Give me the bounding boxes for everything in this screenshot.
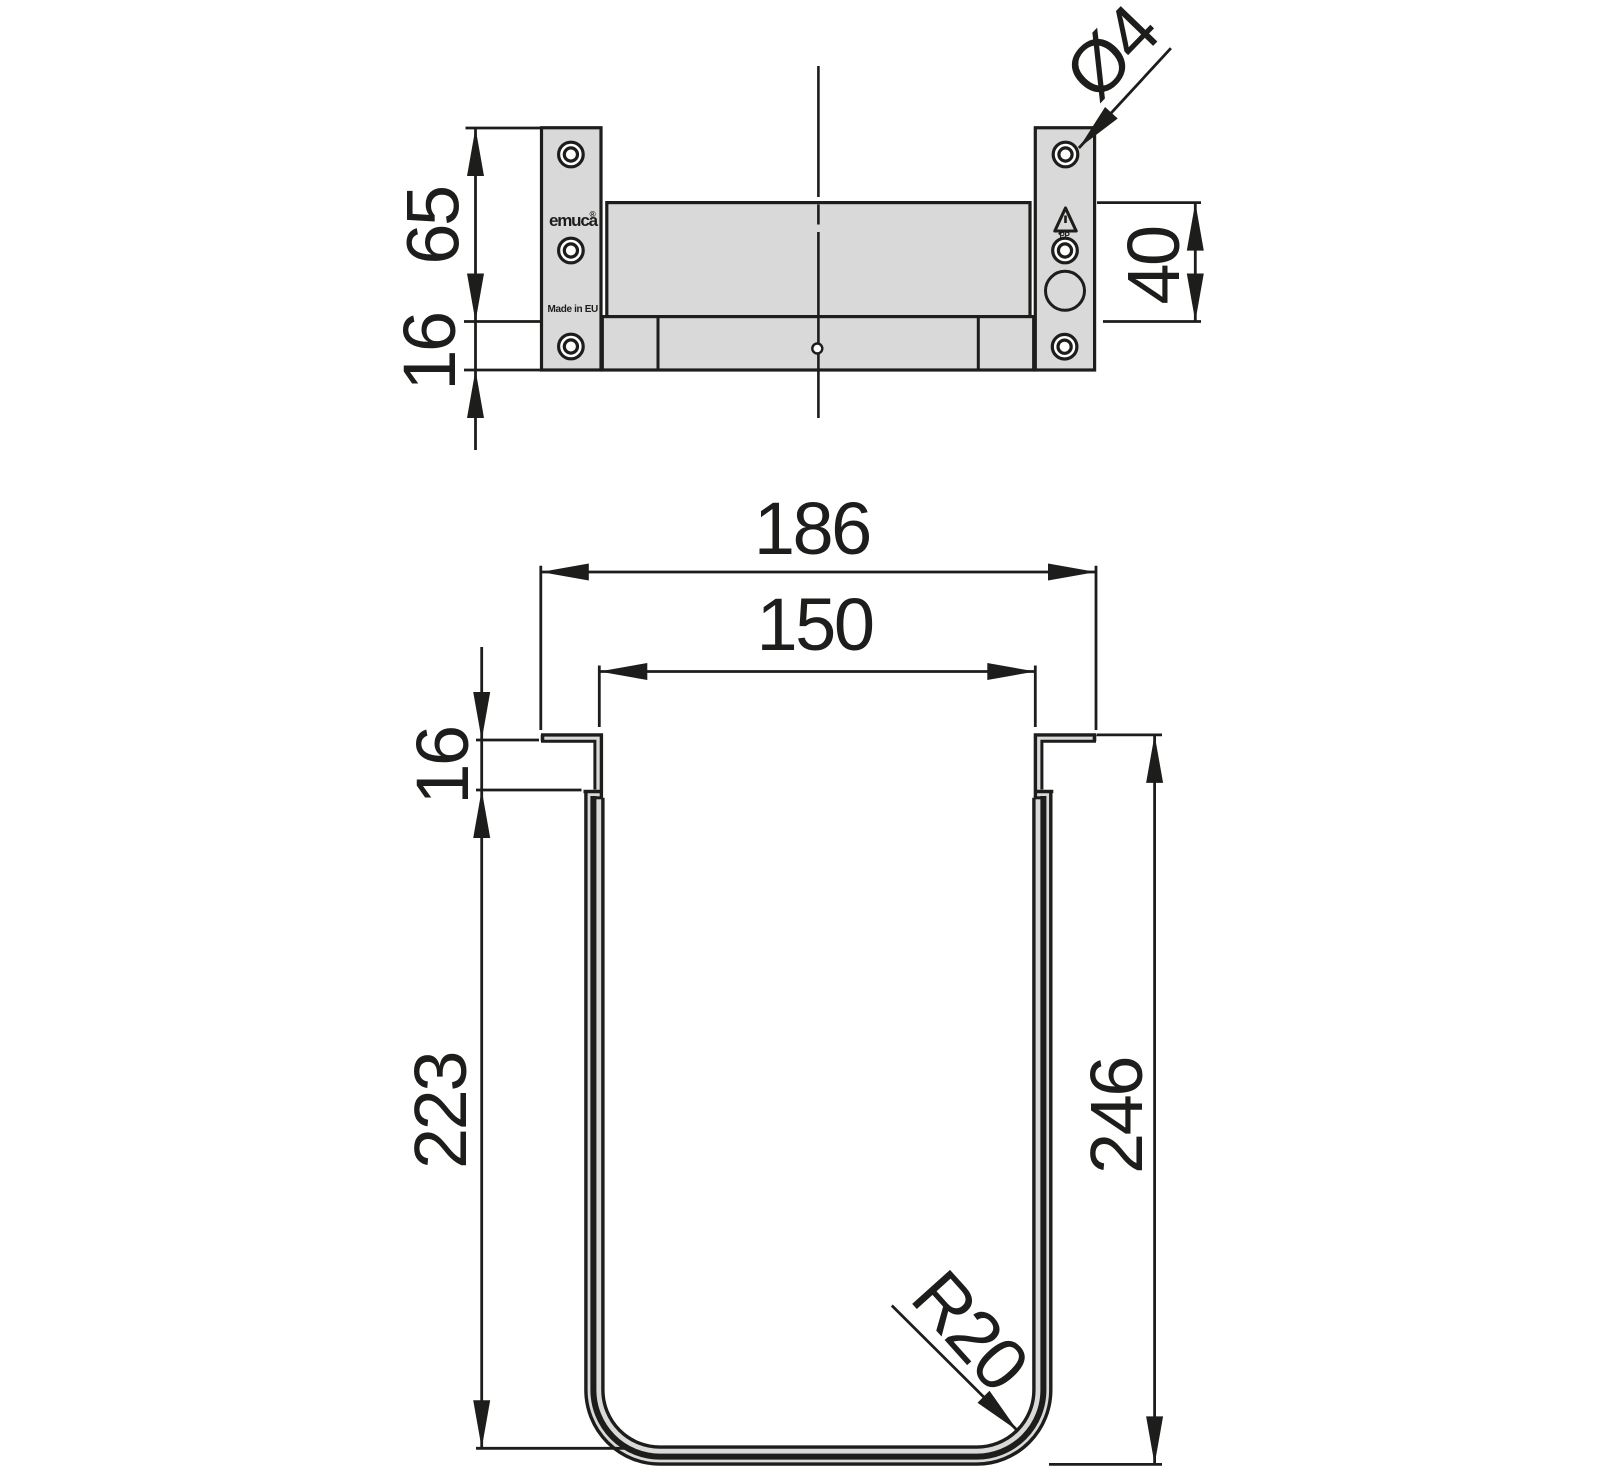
svg-text:246: 246: [1075, 1058, 1158, 1174]
svg-text:65: 65: [392, 187, 475, 265]
svg-text:16: 16: [388, 313, 471, 390]
svg-text:Made in EU: Made in EU: [548, 304, 599, 315]
svg-text:223: 223: [399, 1053, 482, 1169]
svg-text:40: 40: [1112, 227, 1195, 305]
svg-text:16: 16: [401, 727, 484, 804]
svg-text:150: 150: [757, 583, 873, 666]
svg-text:®: ®: [590, 209, 597, 219]
svg-text:186: 186: [754, 487, 870, 570]
